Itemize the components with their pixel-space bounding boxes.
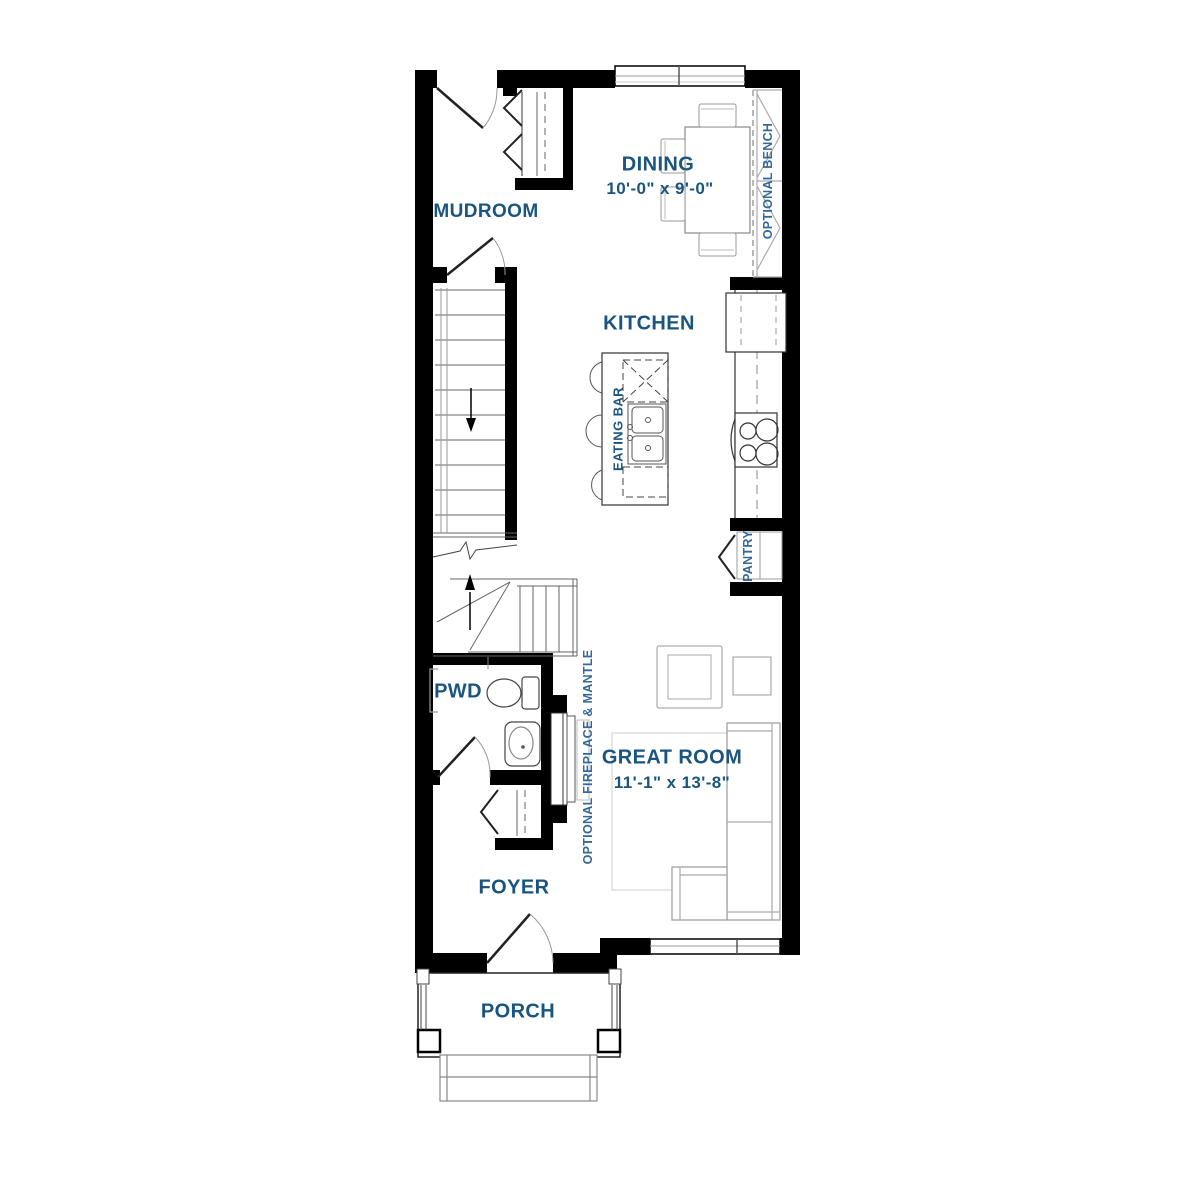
room-label-dining: DINING bbox=[622, 154, 694, 177]
door-mudroom-exterior bbox=[437, 88, 497, 128]
floor-plan-linework bbox=[0, 0, 1200, 1200]
side-table bbox=[733, 657, 771, 695]
annotation-eating-bar: EATING BAR bbox=[611, 387, 626, 471]
floor-plan: MUDROOM DINING 10'-0" x 9'-0" KITCHEN EA… bbox=[0, 0, 1200, 1200]
bifold-mudroom-closet bbox=[504, 90, 522, 170]
kitchen-island bbox=[586, 353, 668, 505]
mudroom-closet-interior bbox=[522, 92, 545, 176]
room-dims-great-room: 11'-1" x 13'-8" bbox=[614, 773, 730, 793]
stair-direction-arrow-down bbox=[466, 388, 476, 432]
stair-handrail bbox=[441, 288, 447, 533]
window-dining bbox=[615, 66, 745, 86]
foyer-closet-interior bbox=[517, 790, 525, 836]
annotation-pantry: PANTRY bbox=[741, 530, 755, 582]
room-label-foyer: FOYER bbox=[479, 877, 550, 900]
toilet bbox=[487, 677, 539, 709]
fridge bbox=[726, 293, 786, 352]
room-label-mudroom: MUDROOM bbox=[433, 201, 538, 223]
room-label-great-room: GREAT ROOM bbox=[602, 747, 742, 770]
bar-stools bbox=[586, 362, 602, 500]
room-label-kitchen: KITCHEN bbox=[603, 313, 695, 336]
window-great-room bbox=[650, 939, 780, 954]
bifold-foyer-closet bbox=[481, 790, 498, 834]
door-front-entry bbox=[487, 914, 553, 963]
room-label-pwd: PWD bbox=[434, 681, 482, 704]
stair-winder bbox=[433, 579, 577, 656]
porch-posts bbox=[418, 1030, 620, 1052]
room-label-porch: PORCH bbox=[481, 1001, 555, 1024]
stove bbox=[731, 413, 778, 467]
annotation-optional-bench: OPTIONAL BENCH bbox=[761, 123, 775, 239]
armchair bbox=[657, 646, 722, 708]
room-dims-dining: 10'-0" x 9'-0" bbox=[606, 179, 713, 199]
porch-steps bbox=[440, 1055, 597, 1101]
pedestal-sink bbox=[505, 722, 540, 766]
annotation-optional-fireplace: OPTIONAL FIREPLACE & MANTLE bbox=[581, 650, 595, 865]
bifold-pantry bbox=[719, 535, 735, 579]
stair-break-line bbox=[433, 542, 517, 559]
door-pwd bbox=[438, 737, 490, 777]
